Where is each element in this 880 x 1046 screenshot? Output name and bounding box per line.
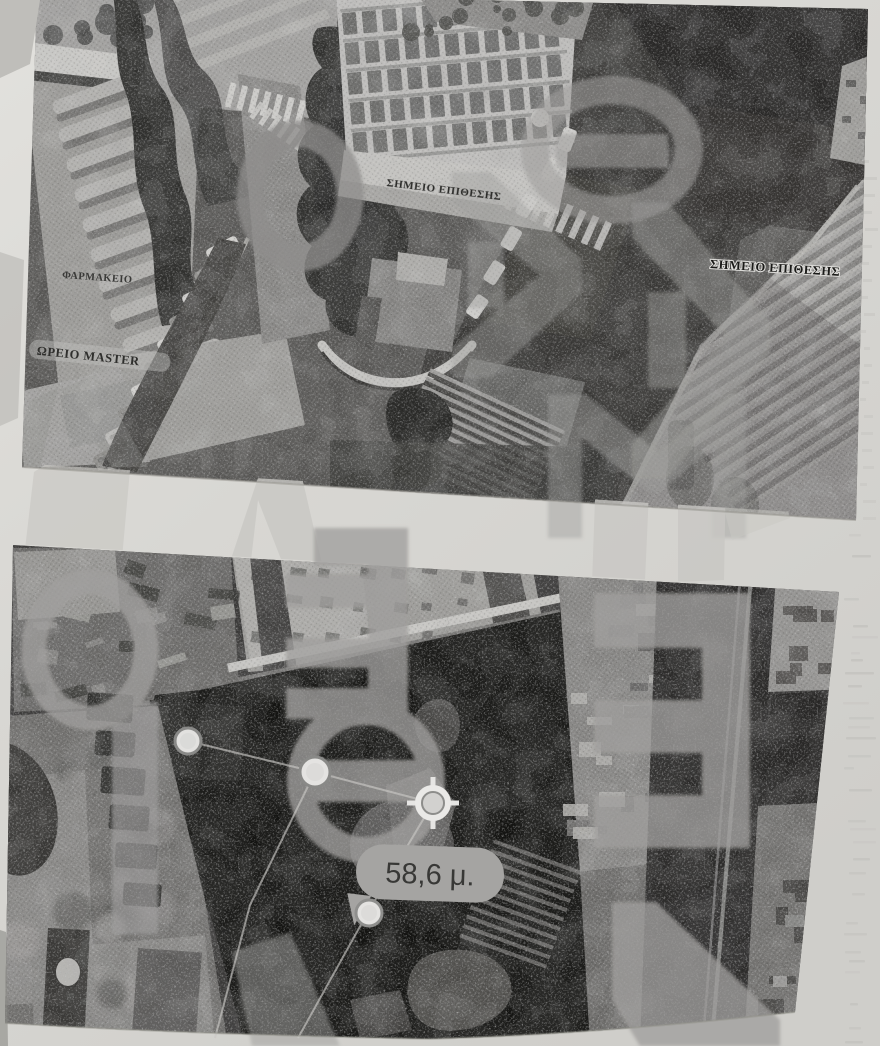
svg-text:58,6 μ.: 58,6 μ.	[385, 857, 475, 892]
